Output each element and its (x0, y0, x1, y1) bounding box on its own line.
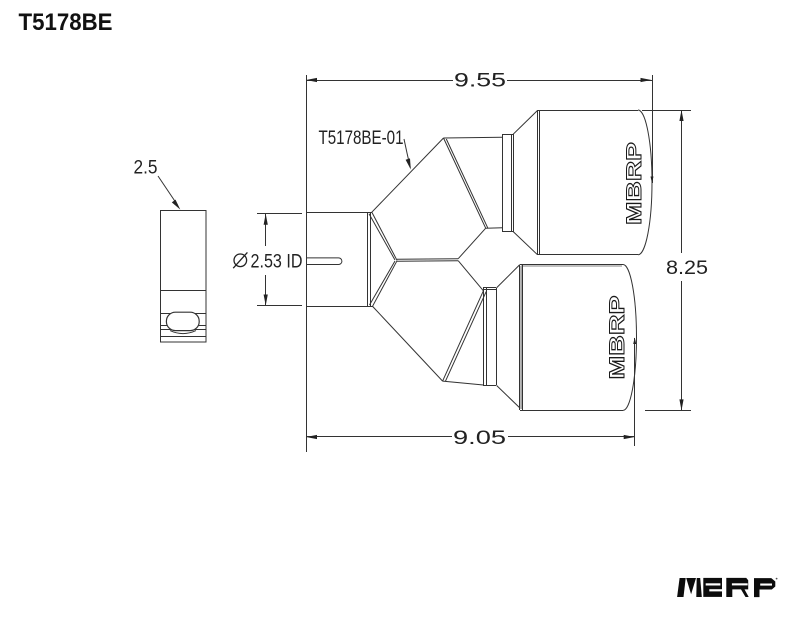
svg-text:8.25: 8.25 (666, 258, 708, 279)
svg-text:T5178BE-01: T5178BE-01 (319, 128, 404, 149)
svg-text:9.05: 9.05 (453, 428, 506, 449)
svg-text:MBRP: MBRP (623, 142, 646, 225)
svg-text:T5178BE: T5178BE (19, 9, 113, 36)
svg-text:9.55: 9.55 (454, 71, 506, 92)
svg-text:2.5: 2.5 (134, 158, 158, 179)
svg-text:2.53 ID: 2.53 ID (251, 252, 303, 273)
svg-text:MBRP: MBRP (606, 296, 629, 380)
